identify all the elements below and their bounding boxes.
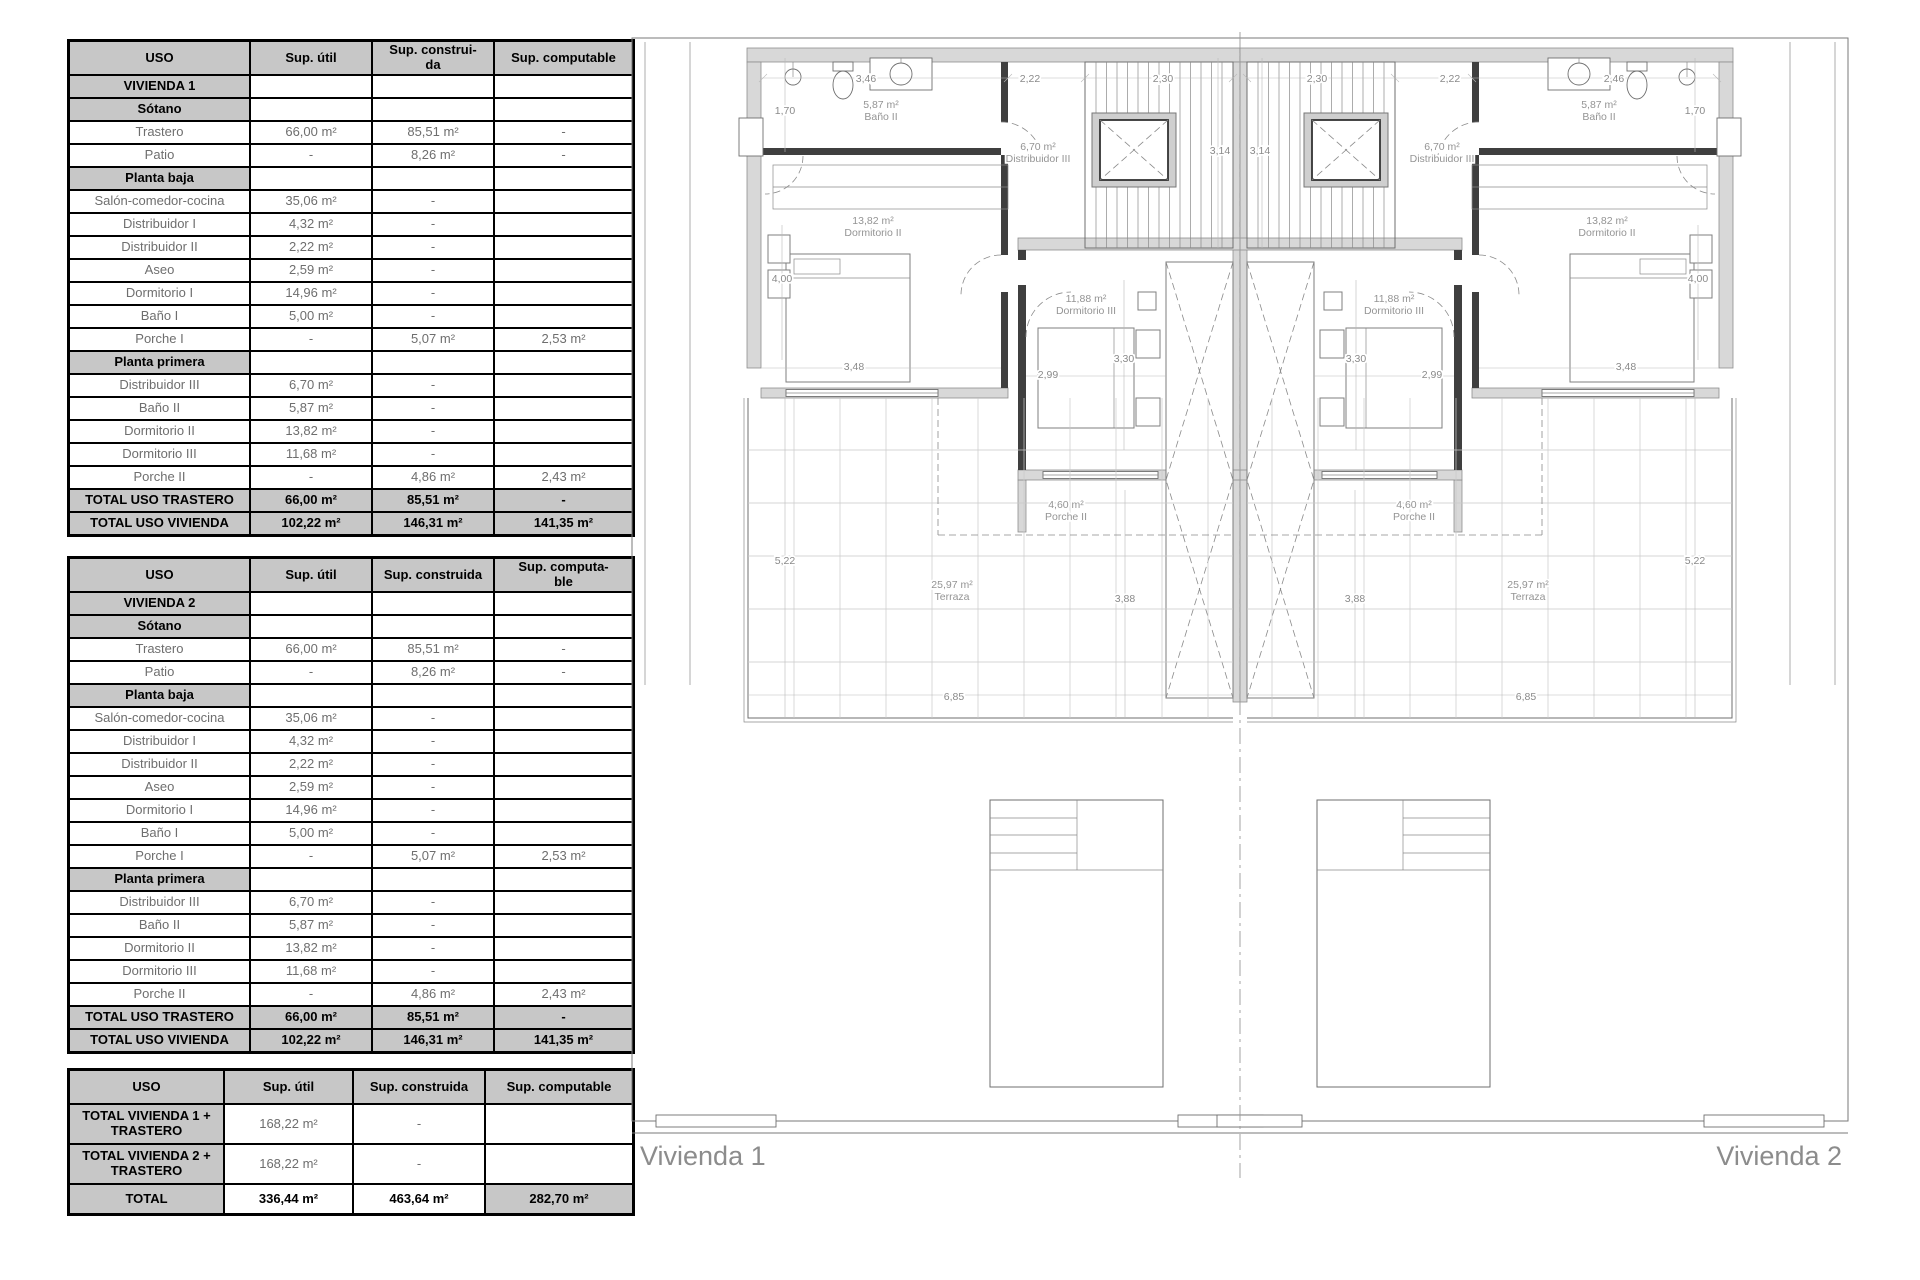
row-value: 5,07 m² — [372, 845, 494, 868]
dimension-label: 5,22 — [1685, 555, 1706, 567]
row-value — [485, 1144, 634, 1184]
row-value — [372, 98, 494, 121]
row-label: Patio — [69, 144, 251, 167]
row-label: Sótano — [69, 615, 251, 638]
table-row: Distribuidor II2,22 m²- — [69, 753, 634, 776]
row-label: Aseo — [69, 776, 251, 799]
row-value: - — [372, 236, 494, 259]
room-label: 25,97 m²Terraza — [1507, 579, 1549, 603]
dimension-label: 3,14 — [1210, 145, 1231, 157]
table-row: Baño I5,00 m²- — [69, 305, 634, 328]
row-value — [494, 374, 634, 397]
row-value: - — [372, 397, 494, 420]
table-row: Dormitorio I14,96 m²- — [69, 282, 634, 305]
table-row: Dormitorio I14,96 m²- — [69, 799, 634, 822]
row-value: 5,87 m² — [250, 914, 372, 937]
table-row: Aseo2,59 m²- — [69, 259, 634, 282]
area-table-vivienda-1: USOSup. útilSup. construi- daSup. comput… — [67, 39, 635, 537]
row-label: Porche I — [69, 845, 251, 868]
row-label: VIVIENDA 2 — [69, 592, 251, 615]
row-value: 66,00 m² — [250, 121, 372, 144]
room-label: 4,60 m²Porche II — [1393, 499, 1435, 523]
row-value: - — [372, 190, 494, 213]
column-header: Sup. construi- da — [372, 41, 494, 76]
row-value — [494, 305, 634, 328]
row-value — [494, 351, 634, 374]
column-header: Sup. computable — [485, 1070, 634, 1105]
row-label: Aseo — [69, 259, 251, 282]
row-value: 2,53 m² — [494, 328, 634, 351]
row-label: TOTAL VIVIENDA 1 + TRASTERO — [69, 1104, 225, 1144]
row-value: - — [494, 638, 634, 661]
row-label: Baño I — [69, 822, 251, 845]
row-value: 2,22 m² — [250, 236, 372, 259]
row-value: 66,00 m² — [250, 1006, 372, 1029]
row-value — [494, 707, 634, 730]
table-row: Porche I-5,07 m²2,53 m² — [69, 845, 634, 868]
table-row: Baño I5,00 m²- — [69, 822, 634, 845]
row-value: 5,87 m² — [250, 397, 372, 420]
table-row: TOTAL336,44 m²463,64 m²282,70 m² — [69, 1184, 634, 1215]
row-value: - — [494, 1006, 634, 1029]
row-value: - — [372, 707, 494, 730]
row-label: Dormitorio II — [69, 937, 251, 960]
row-label: Trastero — [69, 121, 251, 144]
column-header: USO — [69, 1070, 225, 1105]
row-value: 2,43 m² — [494, 983, 634, 1006]
row-value: 66,00 m² — [250, 638, 372, 661]
row-label: Sótano — [69, 98, 251, 121]
row-value: - — [372, 282, 494, 305]
table-row: Porche II-4,86 m²2,43 m² — [69, 466, 634, 489]
row-value — [372, 615, 494, 638]
row-value — [494, 776, 634, 799]
row-label: Baño I — [69, 305, 251, 328]
row-label: Dormitorio I — [69, 799, 251, 822]
table-row: Dormitorio III11,68 m²- — [69, 960, 634, 983]
table-row: VIVIENDA 1 — [69, 75, 634, 98]
dimension-label: 4,00 — [772, 273, 793, 285]
row-value — [494, 937, 634, 960]
table-row: TOTAL USO TRASTERO66,00 m²85,51 m²- — [69, 1006, 634, 1029]
dimension-label: 3,30 — [1346, 353, 1367, 365]
table-row: Planta baja — [69, 684, 634, 707]
row-value: 8,26 m² — [372, 144, 494, 167]
room-label: 6,70 m²Distribuidor III — [1410, 141, 1475, 165]
row-value: 2,22 m² — [250, 753, 372, 776]
row-value — [494, 213, 634, 236]
column-header: Sup. computable — [494, 41, 634, 76]
row-label: Porche II — [69, 983, 251, 1006]
row-label: Patio — [69, 661, 251, 684]
row-value: - — [494, 144, 634, 167]
table-row: Porche I-5,07 m²2,53 m² — [69, 328, 634, 351]
row-value — [494, 75, 634, 98]
row-value: 14,96 m² — [250, 799, 372, 822]
dimension-label: 3,48 — [1616, 361, 1637, 373]
row-value — [485, 1104, 634, 1144]
row-value: - — [494, 121, 634, 144]
table-row: Planta primera — [69, 868, 634, 891]
table-row: TOTAL USO VIVIENDA102,22 m²146,31 m²141,… — [69, 512, 634, 536]
area-table-vivienda-2: USOSup. útilSup. construidaSup. computa-… — [67, 556, 635, 1054]
row-value: 336,44 m² — [224, 1184, 353, 1215]
row-label: TOTAL USO VIVIENDA — [69, 1029, 251, 1053]
row-value — [250, 98, 372, 121]
row-value — [372, 684, 494, 707]
row-label: TOTAL VIVIENDA 2 + TRASTERO — [69, 1144, 225, 1184]
table-row: Sótano — [69, 98, 634, 121]
room-label: 11,88 m²Dormitorio III — [1056, 293, 1116, 317]
table-row: Distribuidor I4,32 m²- — [69, 730, 634, 753]
column-header: Sup. útil — [250, 558, 372, 593]
row-value: 2,53 m² — [494, 845, 634, 868]
room-label: 5,87 m²Baño II — [1581, 99, 1617, 123]
row-value: 102,22 m² — [250, 512, 372, 536]
row-value: 13,82 m² — [250, 420, 372, 443]
dimension-label: 3,48 — [844, 361, 865, 373]
table-row: Baño II5,87 m²- — [69, 397, 634, 420]
row-value — [494, 753, 634, 776]
room-label: 13,82 m²Dormitorio II — [844, 215, 901, 239]
row-value: 4,86 m² — [372, 983, 494, 1006]
row-value: - — [372, 443, 494, 466]
row-label: Trastero — [69, 638, 251, 661]
row-value: 85,51 m² — [372, 121, 494, 144]
dimension-label: 1,70 — [775, 105, 796, 117]
page: USOSup. útilSup. construi- daSup. comput… — [0, 0, 1920, 1280]
row-value: 4,86 m² — [372, 466, 494, 489]
row-value: 168,22 m² — [224, 1104, 353, 1144]
row-value: - — [250, 144, 372, 167]
row-value: - — [372, 776, 494, 799]
row-value: 11,68 m² — [250, 960, 372, 983]
row-value — [250, 868, 372, 891]
dimension-label: 3,30 — [1114, 353, 1135, 365]
row-value: 4,32 m² — [250, 730, 372, 753]
row-value: 11,68 m² — [250, 443, 372, 466]
row-value — [372, 592, 494, 615]
column-header: Sup. útil — [250, 41, 372, 76]
row-value: 168,22 m² — [224, 1144, 353, 1184]
row-value — [250, 684, 372, 707]
row-value: 141,35 m² — [494, 1029, 634, 1053]
dimension-label: 2,46 — [1604, 73, 1625, 85]
row-value — [494, 615, 634, 638]
room-label: 4,60 m²Porche II — [1045, 499, 1087, 523]
row-value: - — [250, 328, 372, 351]
row-label: Dormitorio I — [69, 282, 251, 305]
row-value: 6,70 m² — [250, 374, 372, 397]
row-value — [494, 420, 634, 443]
row-value — [494, 891, 634, 914]
row-value — [372, 868, 494, 891]
row-value: - — [250, 845, 372, 868]
dimension-label: 2,99 — [1038, 369, 1059, 381]
row-value — [372, 351, 494, 374]
table-row: TOTAL VIVIENDA 2 + TRASTERO168,22 m²- — [69, 1144, 634, 1184]
header-row: USOSup. útilSup. construidaSup. computa-… — [69, 558, 634, 593]
row-value: 146,31 m² — [372, 512, 494, 536]
row-value: - — [372, 822, 494, 845]
row-value: - — [372, 914, 494, 937]
dimension-label: 2,30 — [1307, 73, 1328, 85]
dimension-label: 6,85 — [944, 691, 965, 703]
row-value — [494, 98, 634, 121]
row-value: 6,70 m² — [250, 891, 372, 914]
row-label: TOTAL — [69, 1184, 225, 1215]
dimension-label: 3,88 — [1115, 593, 1136, 605]
dimension-label: 2,22 — [1020, 73, 1041, 85]
row-value — [494, 443, 634, 466]
row-label: Salón-comedor-cocina — [69, 707, 251, 730]
row-value: 8,26 m² — [372, 661, 494, 684]
table-row: Salón-comedor-cocina35,06 m²- — [69, 190, 634, 213]
row-value — [494, 236, 634, 259]
row-value — [494, 868, 634, 891]
row-value: - — [250, 983, 372, 1006]
row-value: - — [353, 1144, 485, 1184]
row-value — [250, 592, 372, 615]
row-label: Planta baja — [69, 167, 251, 190]
row-value — [250, 167, 372, 190]
row-value: 2,43 m² — [494, 466, 634, 489]
dimension-label: 2,99 — [1422, 369, 1443, 381]
row-value: 2,59 m² — [250, 259, 372, 282]
table-row: Sótano — [69, 615, 634, 638]
row-label: Porche II — [69, 466, 251, 489]
column-header: Sup. construida — [353, 1070, 485, 1105]
row-label: Planta primera — [69, 351, 251, 374]
table-row: TOTAL VIVIENDA 1 + TRASTERO168,22 m²- — [69, 1104, 634, 1144]
row-value — [250, 351, 372, 374]
dimension-label: 3,88 — [1345, 593, 1366, 605]
row-label: Distribuidor III — [69, 891, 251, 914]
row-value: - — [372, 891, 494, 914]
row-label: TOTAL USO VIVIENDA — [69, 512, 251, 536]
row-value — [494, 397, 634, 420]
row-value: - — [494, 661, 634, 684]
row-value: - — [372, 259, 494, 282]
table-row: VIVIENDA 2 — [69, 592, 634, 615]
column-header: Sup. útil — [224, 1070, 353, 1105]
table-row: Porche II-4,86 m²2,43 m² — [69, 983, 634, 1006]
row-value: - — [250, 466, 372, 489]
table-row: Distribuidor I4,32 m²- — [69, 213, 634, 236]
table-row: Dormitorio II13,82 m²- — [69, 937, 634, 960]
row-value: - — [250, 661, 372, 684]
row-value — [494, 960, 634, 983]
table-row: Aseo2,59 m²- — [69, 776, 634, 799]
table-row: Patio-8,26 m²- — [69, 661, 634, 684]
header-row: USOSup. útilSup. construi- daSup. comput… — [69, 41, 634, 76]
table-row: Baño II5,87 m²- — [69, 914, 634, 937]
column-header: USO — [69, 558, 251, 593]
column-header: Sup. computa- ble — [494, 558, 634, 593]
row-value: - — [372, 374, 494, 397]
row-value — [372, 75, 494, 98]
row-value — [494, 822, 634, 845]
row-value: - — [372, 753, 494, 776]
row-value: - — [353, 1104, 485, 1144]
row-value — [494, 799, 634, 822]
table-row: Distribuidor III6,70 m²- — [69, 891, 634, 914]
row-label: Salón-comedor-cocina — [69, 190, 251, 213]
row-value — [372, 167, 494, 190]
room-label: 6,70 m²Distribuidor III — [1006, 141, 1071, 165]
table-row: TOTAL USO TRASTERO66,00 m²85,51 m²- — [69, 489, 634, 512]
row-value — [494, 259, 634, 282]
row-value: 66,00 m² — [250, 489, 372, 512]
row-value: 4,32 m² — [250, 213, 372, 236]
row-label: Planta primera — [69, 868, 251, 891]
row-value — [494, 190, 634, 213]
row-value: - — [494, 489, 634, 512]
table-row: Planta baja — [69, 167, 634, 190]
row-label: TOTAL USO TRASTERO — [69, 489, 251, 512]
row-value — [494, 592, 634, 615]
row-label: Dormitorio III — [69, 443, 251, 466]
row-label: Dormitorio III — [69, 960, 251, 983]
row-value: 5,07 m² — [372, 328, 494, 351]
row-value: 85,51 m² — [372, 638, 494, 661]
header-row: USOSup. útilSup. construidaSup. computab… — [69, 1070, 634, 1105]
dimension-label: 3,46 — [856, 73, 877, 85]
table-row: TOTAL USO VIVIENDA102,22 m²146,31 m²141,… — [69, 1029, 634, 1053]
dimension-label: 2,22 — [1440, 73, 1461, 85]
dimension-label: 6,85 — [1516, 691, 1537, 703]
column-header: Sup. construida — [372, 558, 494, 593]
row-label: Porche I — [69, 328, 251, 351]
table-row: Trastero66,00 m²85,51 m²- — [69, 638, 634, 661]
row-value: - — [372, 420, 494, 443]
row-value: 141,35 m² — [494, 512, 634, 536]
table-row: Dormitorio III11,68 m²- — [69, 443, 634, 466]
floor-plan: 5,87 m²Baño II6,70 m²Distribuidor III13,… — [618, 30, 1865, 1180]
table-row: Distribuidor III6,70 m²- — [69, 374, 634, 397]
room-label: 11,88 m²Dormitorio III — [1364, 293, 1424, 317]
row-label: Baño II — [69, 397, 251, 420]
row-label: Distribuidor I — [69, 730, 251, 753]
row-value: 282,70 m² — [485, 1184, 634, 1215]
room-label: 25,97 m²Terraza — [931, 579, 973, 603]
dimension-label: 1,70 — [1685, 105, 1706, 117]
row-label: VIVIENDA 1 — [69, 75, 251, 98]
area-table-totales: USOSup. útilSup. construidaSup. computab… — [67, 1068, 635, 1216]
row-value: 463,64 m² — [353, 1184, 485, 1215]
row-value: 35,06 m² — [250, 190, 372, 213]
row-label: Dormitorio II — [69, 420, 251, 443]
room-label: 5,87 m²Baño II — [863, 99, 899, 123]
table-row: Patio-8,26 m²- — [69, 144, 634, 167]
row-value: 5,00 m² — [250, 305, 372, 328]
table-row: Planta primera — [69, 351, 634, 374]
row-value: - — [372, 730, 494, 753]
unit-label: Vivienda 2 — [1716, 1141, 1842, 1171]
table-row: Distribuidor II2,22 m²- — [69, 236, 634, 259]
row-value: 14,96 m² — [250, 282, 372, 305]
table-row: Salón-comedor-cocina35,06 m²- — [69, 707, 634, 730]
unit-label: Vivienda 1 — [640, 1141, 766, 1171]
row-value — [250, 75, 372, 98]
row-value: - — [372, 799, 494, 822]
table-row: Trastero66,00 m²85,51 m²- — [69, 121, 634, 144]
row-value: - — [372, 305, 494, 328]
dimension-label: 4,00 — [1688, 273, 1709, 285]
row-value: 102,22 m² — [250, 1029, 372, 1053]
row-value — [494, 167, 634, 190]
row-value: 85,51 m² — [372, 489, 494, 512]
dimension-label: 2,30 — [1153, 73, 1174, 85]
row-value: 85,51 m² — [372, 1006, 494, 1029]
row-label: Baño II — [69, 914, 251, 937]
row-value: 13,82 m² — [250, 937, 372, 960]
row-value — [494, 684, 634, 707]
row-label: Planta baja — [69, 684, 251, 707]
row-label: Distribuidor II — [69, 753, 251, 776]
row-value — [494, 914, 634, 937]
room-label: 13,82 m²Dormitorio II — [1578, 215, 1635, 239]
row-label: TOTAL USO TRASTERO — [69, 1006, 251, 1029]
row-value — [250, 615, 372, 638]
row-label: Distribuidor II — [69, 236, 251, 259]
row-value: 5,00 m² — [250, 822, 372, 845]
row-value: - — [372, 213, 494, 236]
row-value: - — [372, 937, 494, 960]
dimension-label: 3,14 — [1250, 145, 1271, 157]
dimension-label: 5,22 — [775, 555, 796, 567]
row-label: Distribuidor III — [69, 374, 251, 397]
table-row: Dormitorio II13,82 m²- — [69, 420, 634, 443]
row-value: 2,59 m² — [250, 776, 372, 799]
row-value: 35,06 m² — [250, 707, 372, 730]
row-value — [494, 730, 634, 753]
row-value: - — [372, 960, 494, 983]
column-header: USO — [69, 41, 251, 76]
row-label: Distribuidor I — [69, 213, 251, 236]
row-value — [494, 282, 634, 305]
row-value: 146,31 m² — [372, 1029, 494, 1053]
